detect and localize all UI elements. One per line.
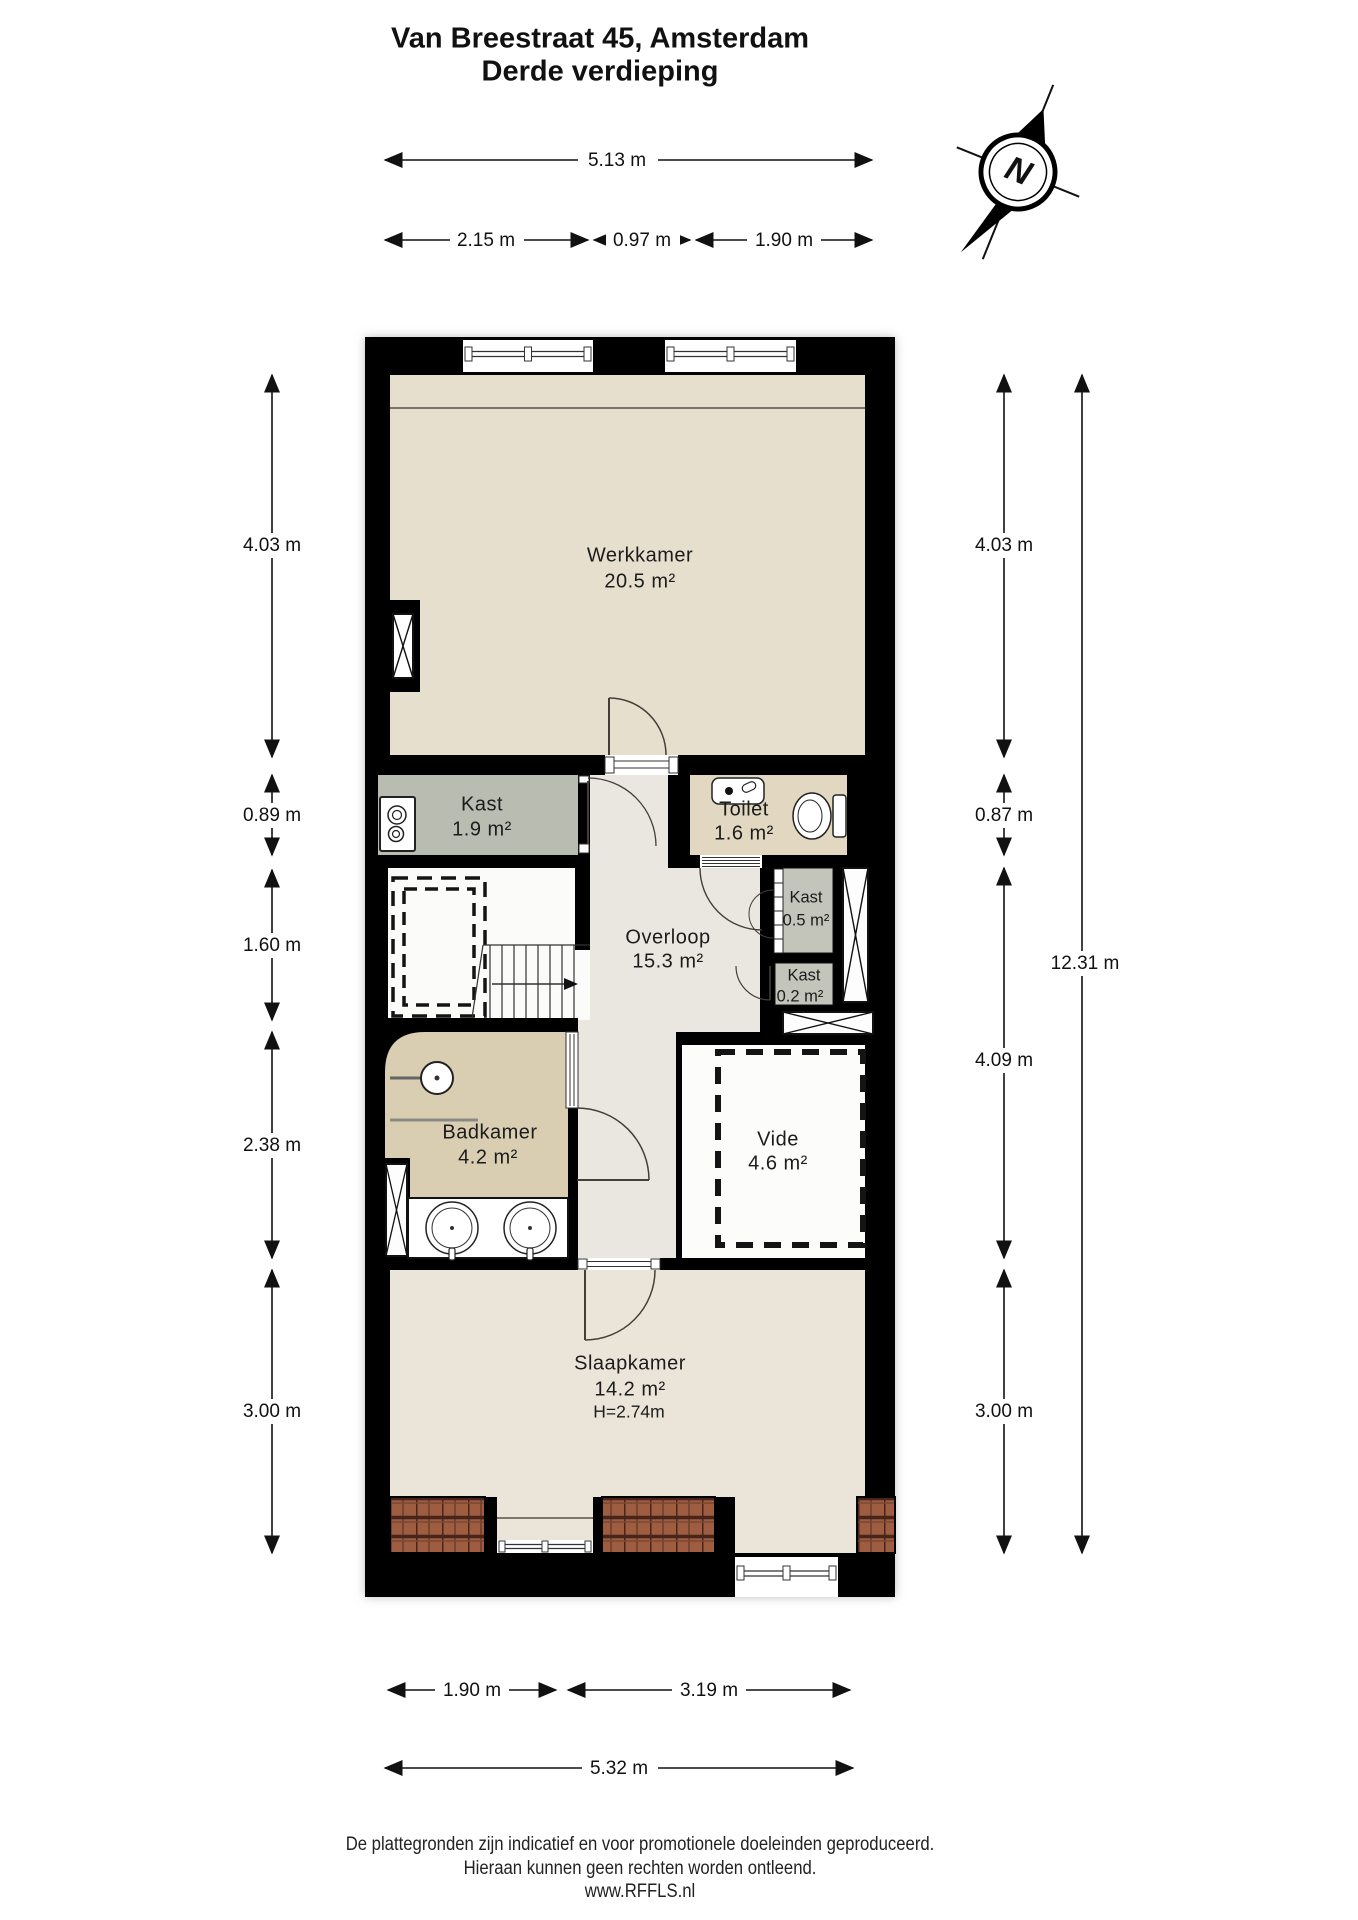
room-vide-area: 4.6 m²: [748, 1152, 808, 1174]
bathroom-shaft-icon: [386, 1164, 407, 1256]
page-subtitle: Derde verdieping: [482, 56, 719, 88]
double-washbasin-icon: [408, 1198, 568, 1260]
toilet-icon: [793, 793, 846, 839]
dim-left-slaapkamer: 3.00 m: [243, 1401, 301, 1422]
window-icon: [735, 1557, 838, 1597]
dim-right-vide: 4.09 m: [975, 1050, 1033, 1071]
room-badkamer-label: Badkamer: [442, 1121, 537, 1143]
room-overloop-area: 15.3 m²: [632, 950, 703, 972]
dim-bottom-seg2: 3.19 m: [680, 1680, 738, 1701]
footer-line-1: De plattegronden zijn indicatief en voor…: [346, 1833, 935, 1854]
compass-north-icon: N: [921, 60, 1115, 286]
boiler-icon: [380, 797, 415, 851]
footer-disclaimer: De plattegronden zijn indicatief en voor…: [346, 1833, 935, 1901]
room-kast-02-area: 0.2 m²: [777, 987, 824, 1005]
chimney-shaft-icon: [393, 614, 413, 678]
stairwell-floor: [388, 868, 590, 1020]
room-kast-05-area: 0.5 m²: [783, 911, 830, 929]
dim-left-stairs: 1.60 m: [243, 935, 301, 956]
floorplan-page: { "title": { "line1": "Van Breestraat 45…: [0, 0, 1358, 1920]
room-overloop-label: Overloop: [625, 926, 710, 948]
dim-top-total: 5.13 m: [588, 150, 646, 171]
room-slaapkamer-area: 14.2 m²: [594, 1378, 665, 1400]
dim-right-werkkamer: 4.03 m: [975, 535, 1033, 556]
room-werkkamer-label: Werkkamer: [587, 544, 693, 566]
dim-bottom-seg1: 1.90 m: [443, 1680, 501, 1701]
dim-left-werkkamer: 4.03 m: [243, 535, 301, 556]
room-kast-groot-area: 1.9 m²: [452, 818, 512, 840]
room-kast-05-label: Kast: [789, 888, 822, 906]
room-vide-label: Vide: [757, 1128, 799, 1150]
room-slaapkamer-label: Slaapkamer: [574, 1352, 686, 1374]
room-werkkamer-area: 20.5 m²: [604, 570, 675, 592]
room-toilet-label: Toilet: [719, 798, 769, 820]
footer-line-2: Hieraan kunnen geen rechten worden ontle…: [464, 1857, 817, 1878]
footer-website: www.RFFLS.nl: [584, 1880, 695, 1901]
window-icon: [497, 1540, 593, 1553]
dim-bottom-total: 5.32 m: [590, 1758, 648, 1779]
room-kast-groot-label: Kast: [461, 793, 503, 815]
page-title: Van Breestraat 45, Amsterdam: [391, 23, 809, 55]
dim-right-toilet: 0.87 m: [975, 805, 1033, 826]
dim-top-seg2: 0.97 m: [613, 230, 671, 251]
dim-left-kast: 0.89 m: [243, 805, 301, 826]
dim-left-badkamer: 2.38 m: [243, 1135, 301, 1156]
room-badkamer-floor: [385, 1032, 568, 1200]
room-slaapkamer-height: H=2.74m: [593, 1402, 665, 1422]
window-icon: [463, 340, 593, 372]
dim-top-seg3: 1.90 m: [755, 230, 813, 251]
shaft-icon: [843, 868, 868, 1002]
window-icon: [665, 340, 796, 372]
dim-top-seg1: 2.15 m: [457, 230, 515, 251]
floorplan-drawing: Werkkamer 20.5 m² Kast 1.9 m² Toilet 1.6…: [365, 337, 895, 1597]
room-toilet-area: 1.6 m²: [714, 822, 774, 844]
shaft-icon: [783, 1012, 873, 1034]
room-kast-02-label: Kast: [787, 966, 820, 984]
floorplan-canvas: Van Breestraat 45, Amsterdam Derde verdi…: [0, 0, 1358, 1920]
dim-right-slaapkamer: 3.00 m: [975, 1401, 1033, 1422]
dim-right-total: 12.31 m: [1051, 953, 1120, 974]
room-badkamer-area: 4.2 m²: [458, 1146, 518, 1168]
